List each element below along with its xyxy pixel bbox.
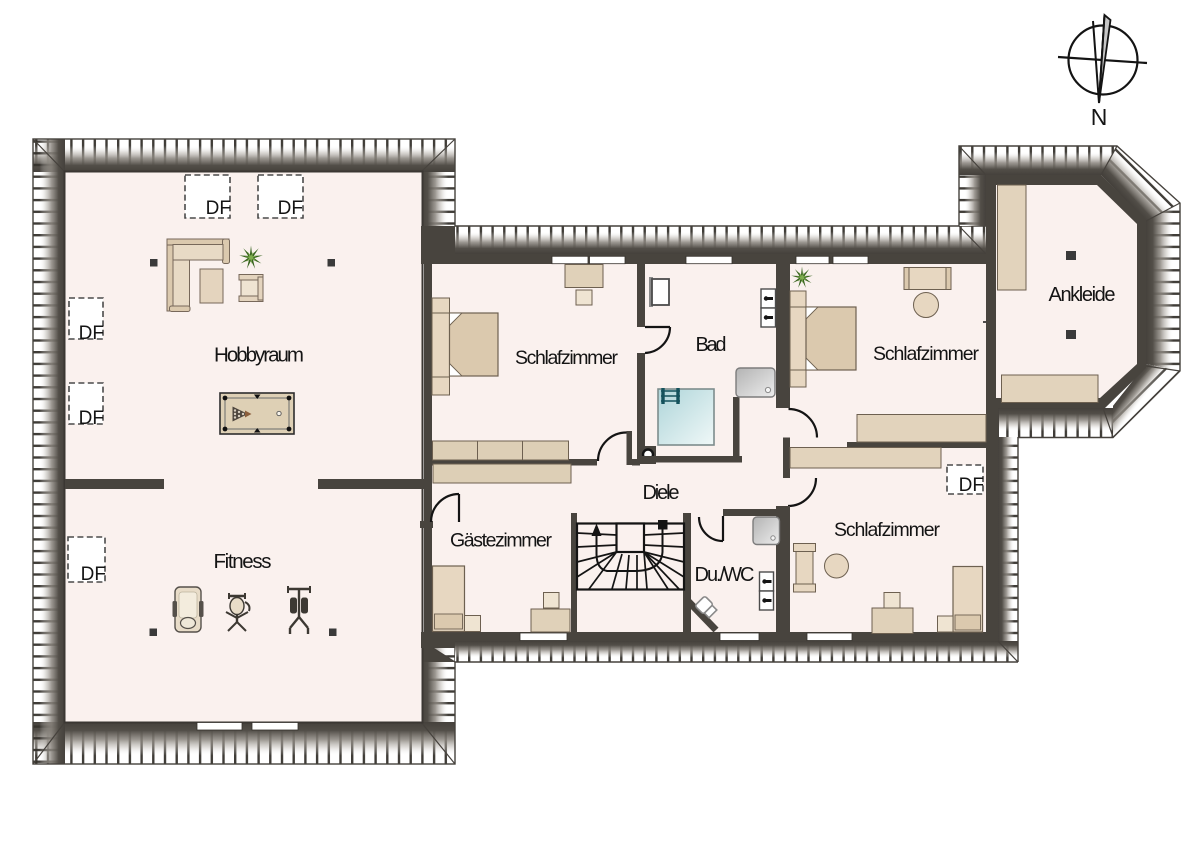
svg-text:DF: DF [79, 323, 104, 344]
svg-text:Gästezimmer: Gästezimmer [450, 530, 553, 552]
svg-text:DF: DF [79, 408, 104, 429]
svg-text:DF: DF [206, 198, 231, 219]
svg-text:DF: DF [278, 198, 303, 219]
svg-text:Diele: Diele [643, 482, 680, 504]
svg-text:N: N [1091, 104, 1108, 130]
svg-text:Schlafzimmer: Schlafzimmer [834, 519, 941, 541]
svg-text:Schlafzimmer: Schlafzimmer [515, 347, 619, 369]
svg-text:Fitness: Fitness [214, 550, 272, 573]
svg-text:Ankleide: Ankleide [1049, 284, 1116, 306]
svg-text:Bad: Bad [696, 334, 727, 356]
svg-text:Du./WC: Du./WC [695, 564, 755, 586]
svg-text:DF: DF [959, 475, 984, 496]
svg-text:DF: DF [81, 564, 106, 585]
svg-text:Hobbyraum: Hobbyraum [214, 344, 304, 367]
svg-text:Schlafzimmer: Schlafzimmer [873, 343, 980, 365]
